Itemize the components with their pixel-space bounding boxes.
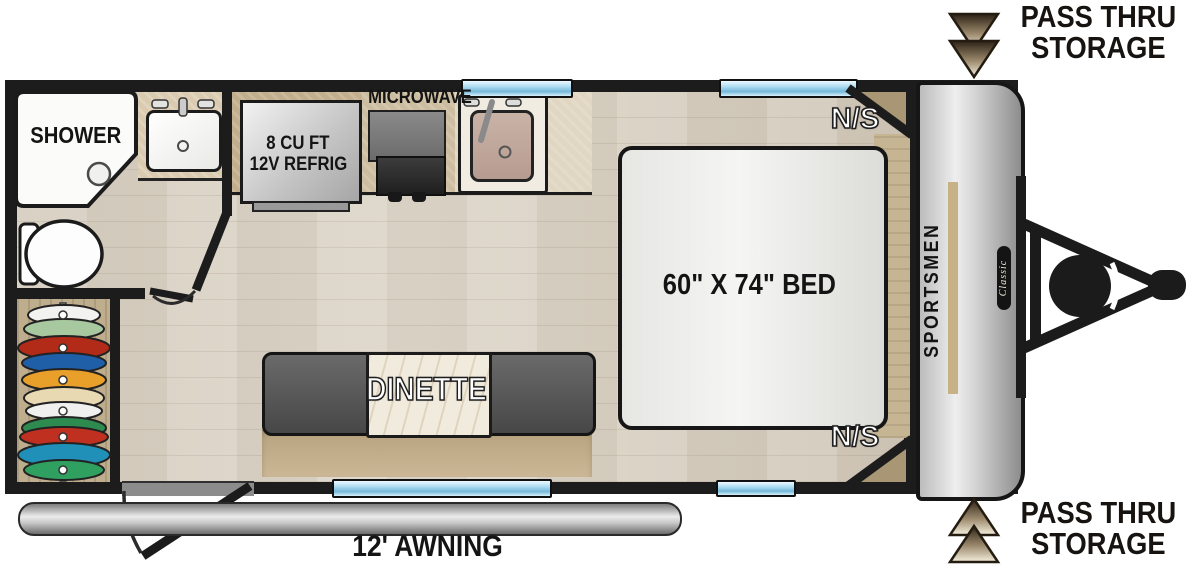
hanger-hook bbox=[59, 407, 67, 415]
rv-floorplan: SPORTSMEN Classic bbox=[0, 0, 1200, 574]
bathroom-diagonal-wall bbox=[196, 212, 227, 290]
faucet-handle bbox=[152, 100, 168, 108]
hanger-hook bbox=[59, 433, 67, 441]
pass-thru-label-top: PASS THRU STORAGE bbox=[996, 1, 1200, 63]
nightstand-label-top: N/S bbox=[820, 103, 890, 136]
toilet bbox=[26, 221, 102, 287]
hanger-hook bbox=[59, 311, 67, 319]
hitch-coupler bbox=[1148, 270, 1186, 300]
faucet-spout bbox=[179, 98, 187, 116]
nightstand-label-bottom: N/S bbox=[820, 421, 890, 454]
hanger-hook bbox=[59, 466, 67, 474]
propane-tank bbox=[1049, 255, 1111, 317]
faucet-handle bbox=[506, 99, 521, 106]
sink-drain bbox=[178, 141, 188, 151]
dinette-label: DINETTE bbox=[336, 371, 516, 408]
awning-label: 12' AWNING bbox=[268, 530, 588, 564]
frame-crossmember bbox=[1016, 176, 1026, 398]
shower-drain bbox=[88, 163, 110, 185]
hanger-hook bbox=[59, 376, 67, 384]
refrigerator-label: 8 CU FT 12V REFRIG bbox=[240, 134, 356, 175]
sink-drain bbox=[500, 147, 511, 158]
faucet-handle bbox=[198, 100, 214, 108]
shower-label: SHOWER bbox=[14, 122, 138, 149]
aframe-crossbar bbox=[1030, 228, 1041, 344]
propane-tank-highlight bbox=[1112, 263, 1118, 309]
shower-stall bbox=[16, 92, 136, 206]
pass-thru-label-bottom: PASS THRU STORAGE bbox=[996, 497, 1200, 559]
floorplan-graphics bbox=[0, 0, 1200, 574]
hanger-hook bbox=[59, 344, 67, 352]
microwave-label: MICROWAVE bbox=[352, 87, 488, 109]
bed-label: 60" X 74" BED bbox=[616, 269, 882, 302]
pass-thru-arrow-down-icon bbox=[950, 41, 998, 77]
